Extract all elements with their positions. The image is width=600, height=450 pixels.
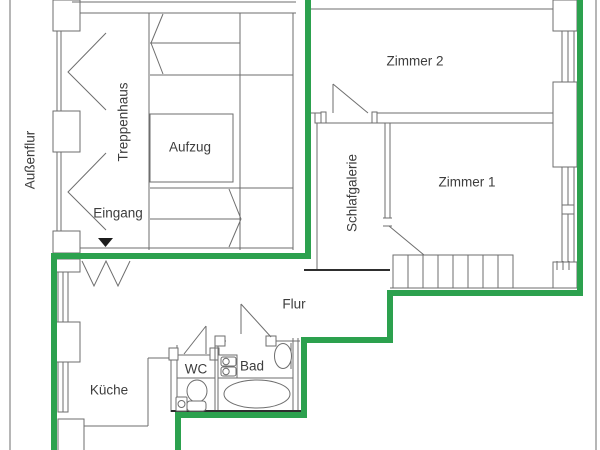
wc-door-swing <box>184 326 206 354</box>
room-label-zimmer1: Zimmer 1 <box>439 175 496 190</box>
kitchen-windows <box>53 259 80 412</box>
room-label-eingang: Eingang <box>93 206 143 221</box>
room-label-bad: Bad <box>240 359 264 374</box>
right-windows <box>311 0 577 288</box>
room-label-aussenflur: Außenflur <box>23 131 38 190</box>
gallery-door-swing <box>389 226 424 255</box>
room-label-treppenhaus: Treppenhaus <box>116 82 131 161</box>
bathtub-icon <box>224 380 290 408</box>
zimmer2-door-swing <box>333 84 368 113</box>
sink-icon <box>275 343 292 369</box>
room-label-wc: WC <box>185 362 208 377</box>
room-label-kueche: Küche <box>90 383 128 398</box>
room-label-zimmer2: Zimmer 2 <box>387 54 444 69</box>
room-label-flur: Flur <box>282 297 305 312</box>
toilet-icon <box>176 380 207 411</box>
room-label-schlafgalerie: Schlafgalerie <box>345 154 360 232</box>
entrance-arrow-icon <box>98 238 113 247</box>
floorplan-canvas: Außenflur Treppenhaus Aufzug Eingang Zim… <box>0 0 600 450</box>
kitchen-counter <box>58 358 171 450</box>
entrance-door-swing <box>82 261 130 286</box>
washbasin-icon <box>218 355 237 378</box>
gallery-stairs <box>393 255 513 288</box>
bad-door-swing <box>241 304 271 337</box>
zimmer2-divider-wall <box>311 112 553 123</box>
room-label-aufzug: Aufzug <box>169 140 211 155</box>
